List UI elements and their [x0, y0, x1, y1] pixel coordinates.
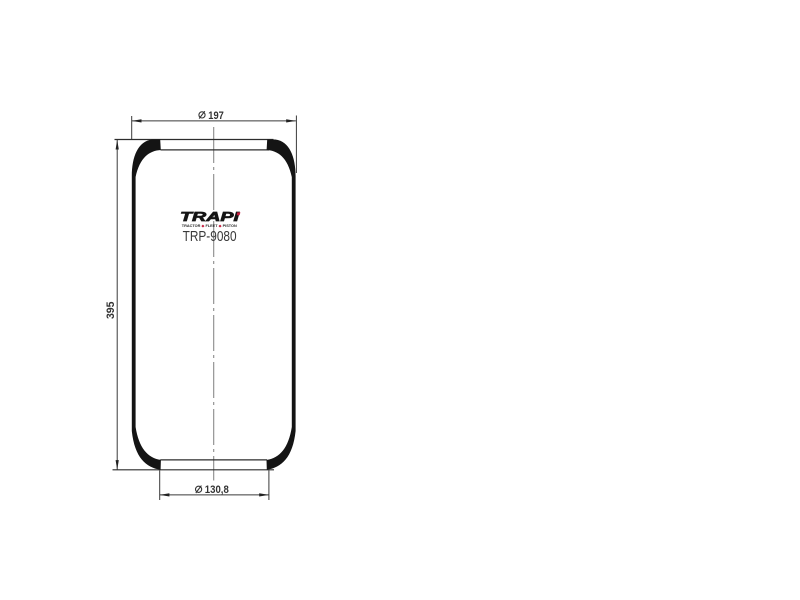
svg-text:TRAPI: TRAPI — [180, 209, 240, 224]
svg-text:130,8: 130,8 — [205, 484, 229, 496]
svg-text:TRP-9080: TRP-9080 — [183, 228, 237, 245]
svg-text:395: 395 — [105, 302, 117, 320]
svg-text:197: 197 — [208, 110, 224, 122]
